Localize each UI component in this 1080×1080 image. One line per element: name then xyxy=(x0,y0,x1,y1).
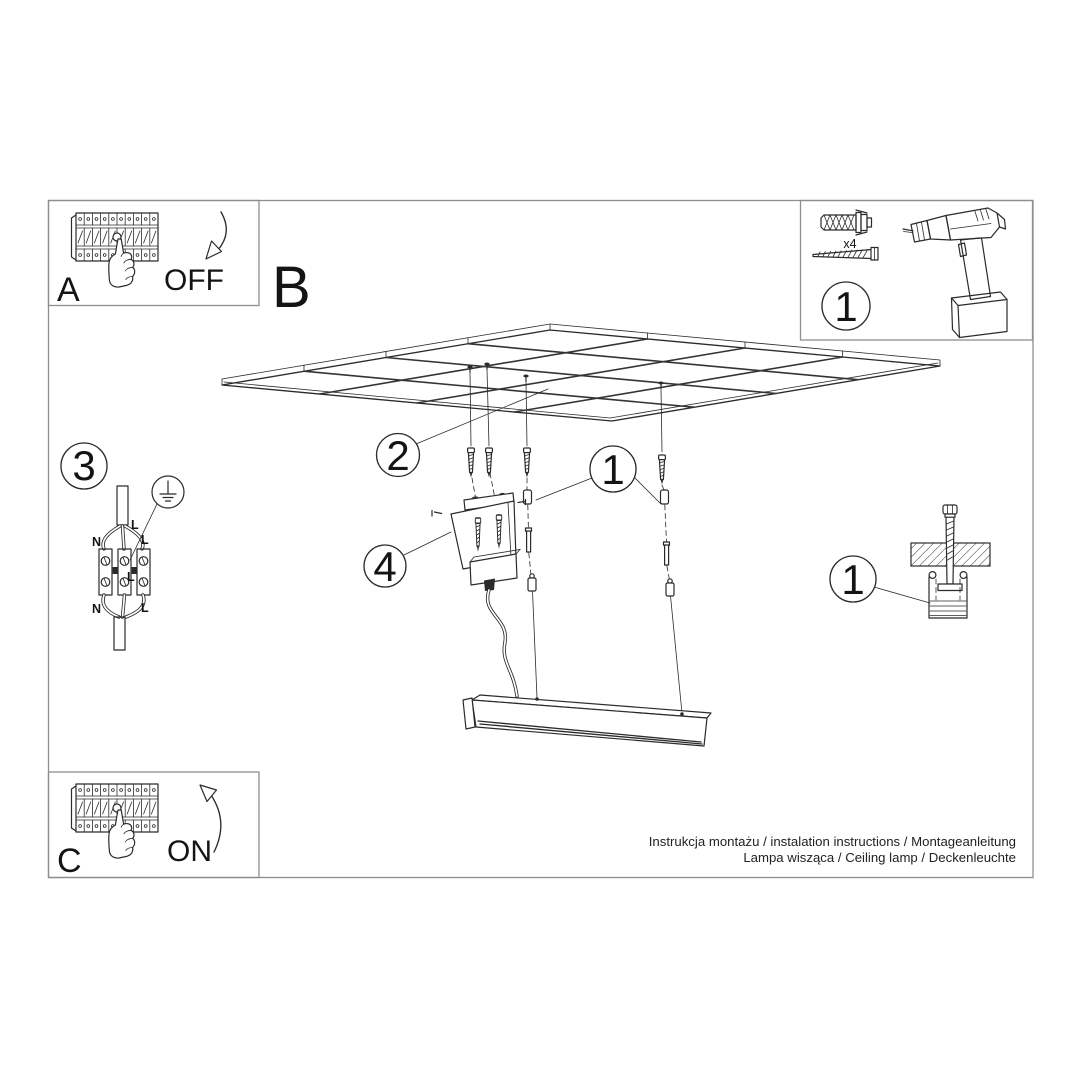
bottom-cable xyxy=(114,617,125,650)
mounting-screw xyxy=(524,448,531,478)
live-label-top: L xyxy=(141,533,149,547)
wiring-step-number: 3 xyxy=(72,442,95,489)
footer-text: Instrukcja montażu / instalation instruc… xyxy=(649,834,1016,865)
line-label-mid: L xyxy=(127,570,135,584)
drill-icon xyxy=(903,208,1007,338)
power-cable xyxy=(488,590,517,696)
top-cable xyxy=(117,486,128,525)
pendant-lamp xyxy=(463,695,711,746)
callout-number-canopy: 4 xyxy=(373,543,396,590)
installation-diagram: A OFF B x4 1 xyxy=(0,0,1080,1080)
step-a-box xyxy=(49,201,260,306)
neutral-label-bottom: N xyxy=(92,602,101,616)
callout-number-suspension: 1 xyxy=(601,446,624,493)
anchor-cross-section: 1 xyxy=(830,505,990,618)
screw-quantity-label: x4 xyxy=(843,237,856,251)
line-label-top: L xyxy=(131,518,139,532)
callout-ceiling-screws: 2 xyxy=(377,389,549,479)
callout-number-screws: 2 xyxy=(386,432,409,479)
step-c-power-on: C ON xyxy=(57,784,221,880)
page-border xyxy=(49,201,1034,878)
callout-number-anchor: 1 xyxy=(841,556,864,603)
step-c-label: C xyxy=(57,842,82,880)
installation-manual-page: A OFF B x4 1 xyxy=(0,0,1080,1080)
on-label: ON xyxy=(167,835,212,868)
suspended-ceiling xyxy=(222,324,940,421)
off-label: OFF xyxy=(164,264,224,297)
ceiling-fixing-point xyxy=(523,375,528,382)
neutral-label-top: N xyxy=(92,535,101,549)
footer-line-1: Instrukcja montażu / instalation instruc… xyxy=(649,834,1016,849)
live-label-bottom: L xyxy=(141,601,149,615)
callout-suspension-kit: 1 xyxy=(536,446,661,504)
terminal-block xyxy=(99,549,150,595)
wall-plug-icon xyxy=(821,210,872,235)
mounting-screw xyxy=(659,455,666,485)
spare-screw-left xyxy=(432,511,442,517)
suspension-wire-right xyxy=(661,485,683,713)
step-a-label: A xyxy=(57,271,80,309)
mounting-screw xyxy=(486,448,493,478)
tools-step-number: 1 xyxy=(834,283,857,330)
step-a-power-off: A OFF xyxy=(57,212,226,309)
footer-line-2: Lampa wisząca / Ceiling lamp / Deckenleu… xyxy=(743,850,1016,865)
ceiling-canopy xyxy=(432,493,526,591)
curved-arrow-down-icon xyxy=(206,212,226,259)
tools-and-fixings-box: x4 1 xyxy=(813,208,1007,338)
wiring-diagram: 3 L N L L N L xyxy=(61,442,184,650)
suspension-wire-left xyxy=(524,478,538,698)
step-b-label: B xyxy=(272,255,311,320)
callout-canopy: 4 xyxy=(364,532,451,590)
mounting-screw xyxy=(468,448,475,478)
